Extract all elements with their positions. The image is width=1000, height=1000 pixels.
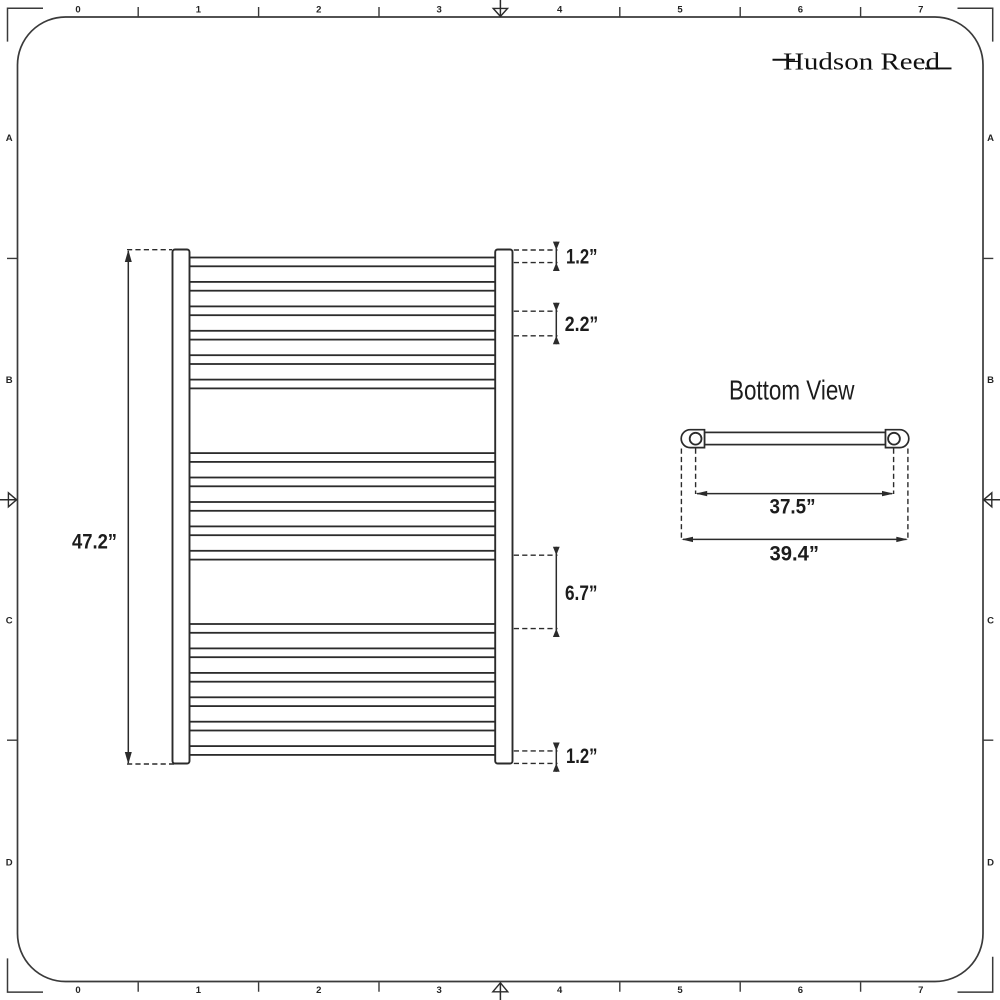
svg-text:1.2”: 1.2” (566, 745, 598, 768)
svg-text:C: C (987, 616, 994, 627)
svg-text:A: A (6, 133, 13, 144)
svg-text:5: 5 (677, 5, 683, 16)
svg-text:0: 0 (75, 985, 80, 996)
svg-text:7: 7 (918, 5, 923, 16)
svg-text:C: C (6, 616, 13, 627)
svg-text:B: B (6, 375, 13, 386)
svg-text:2: 2 (316, 5, 321, 16)
svg-text:1: 1 (196, 985, 202, 996)
svg-text:3: 3 (437, 5, 442, 16)
svg-text:Bottom View: Bottom View (729, 375, 855, 406)
svg-text:39.4”: 39.4” (770, 543, 820, 566)
svg-text:Hudson Reed: Hudson Reed (783, 49, 940, 75)
svg-text:2: 2 (316, 985, 321, 996)
svg-text:1.2”: 1.2” (566, 245, 598, 268)
svg-text:5: 5 (677, 985, 683, 996)
svg-text:7: 7 (918, 985, 923, 996)
svg-text:A: A (987, 133, 994, 144)
svg-text:D: D (987, 858, 994, 869)
svg-text:1: 1 (196, 5, 202, 16)
svg-text:D: D (6, 858, 13, 869)
svg-text:37.5”: 37.5” (770, 495, 816, 518)
svg-text:4: 4 (557, 5, 563, 16)
svg-text:47.2”: 47.2” (72, 531, 117, 554)
svg-text:B: B (987, 375, 994, 386)
svg-text:6.7”: 6.7” (565, 582, 598, 605)
svg-text:3: 3 (437, 985, 442, 996)
svg-text:4: 4 (557, 985, 563, 996)
svg-text:0: 0 (75, 5, 80, 16)
svg-text:6: 6 (798, 5, 803, 16)
svg-text:6: 6 (798, 985, 803, 996)
svg-text:2.2”: 2.2” (565, 313, 599, 336)
